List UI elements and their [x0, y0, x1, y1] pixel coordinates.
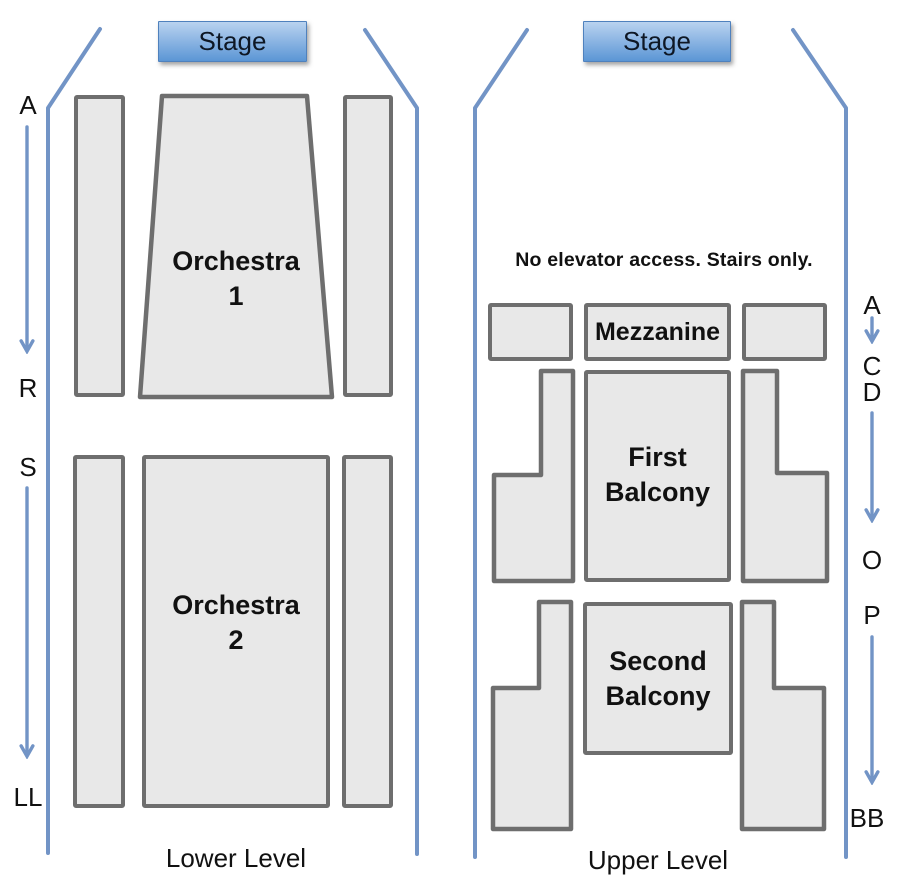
theater-seating-chart: Stage Orchestra 1 Orchestra 2 A R S LL L… [0, 0, 900, 895]
lower-right-side-section-front [343, 95, 393, 397]
chart-shapes-layer [0, 0, 900, 895]
first-balcony-right-side-shape [743, 371, 827, 581]
first-balcony-label: First Balcony [584, 440, 731, 510]
lower-right-side-section-rear [342, 455, 393, 808]
lower-stage: Stage [158, 21, 307, 62]
lower-row-label-a: A [8, 89, 48, 121]
lower-left-side-section-rear [73, 455, 125, 808]
lower-row-label-s: S [8, 451, 48, 483]
lower-stage-label: Stage [199, 26, 267, 57]
first-balcony-left-side-shape [494, 371, 573, 581]
upper-row-label-bb: BB [845, 802, 889, 834]
no-elevator-note: No elevator access. Stairs only. [464, 249, 864, 272]
second-balcony-right-side-shape [742, 602, 824, 829]
orchestra-2-label: Orchestra 2 [142, 588, 330, 658]
mezzanine-label: Mezzanine [595, 318, 720, 347]
lower-row-label-ll: LL [3, 781, 53, 813]
mezzanine-section-shape: Mezzanine [584, 303, 731, 361]
upper-stage: Stage [583, 21, 731, 62]
mezzanine-right-side-section [742, 303, 827, 361]
lower-level-title: Lower Level [86, 843, 386, 874]
upper-row-label-o: O [852, 544, 892, 576]
second-balcony-left-side-shape [493, 602, 571, 829]
orchestra-1-label: Orchestra 1 [140, 244, 332, 314]
upper-row-label-a: A [852, 289, 892, 321]
upper-row-label-p: P [852, 599, 892, 631]
lower-left-side-section-front [74, 95, 125, 397]
mezzanine-left-side-section [488, 303, 573, 361]
second-balcony-label: Second Balcony [583, 644, 733, 714]
lower-row-label-r: R [8, 372, 48, 404]
upper-level-title: Upper Level [508, 845, 808, 876]
upper-stage-label: Stage [623, 26, 691, 57]
upper-row-label-d: D [852, 376, 892, 408]
